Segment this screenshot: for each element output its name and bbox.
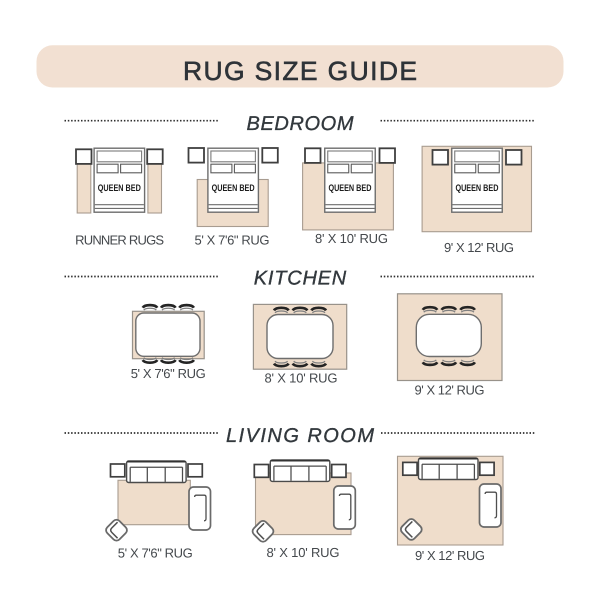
svg-text:9' X 12' RUG: 9' X 12' RUG xyxy=(415,383,485,398)
svg-text:KITCHEN: KITCHEN xyxy=(254,268,347,290)
svg-text:9' X 12' RUG: 9' X 12' RUG xyxy=(415,548,485,563)
svg-text:RUNNER RUGS: RUNNER RUGS xyxy=(75,233,164,248)
svg-text:LIVING ROOM: LIVING ROOM xyxy=(226,425,374,447)
svg-text:BEDROOM: BEDROOM xyxy=(247,113,354,135)
svg-text:8' X 10' RUG: 8' X 10' RUG xyxy=(267,545,340,560)
svg-text:9' X 12' RUG: 9' X 12' RUG xyxy=(444,240,514,255)
svg-text:8' X 10' RUG: 8' X 10' RUG xyxy=(315,231,388,246)
svg-text:5' X 7'6" RUG: 5' X 7'6" RUG xyxy=(118,546,193,561)
svg-text:RUG SIZE GUIDE: RUG SIZE GUIDE xyxy=(183,56,417,86)
svg-text:5' X 7'6" RUG: 5' X 7'6" RUG xyxy=(131,366,206,381)
svg-text:8' X 10' RUG: 8' X 10' RUG xyxy=(265,371,338,386)
svg-text:5' X 7'6" RUG: 5' X 7'6" RUG xyxy=(195,233,270,248)
